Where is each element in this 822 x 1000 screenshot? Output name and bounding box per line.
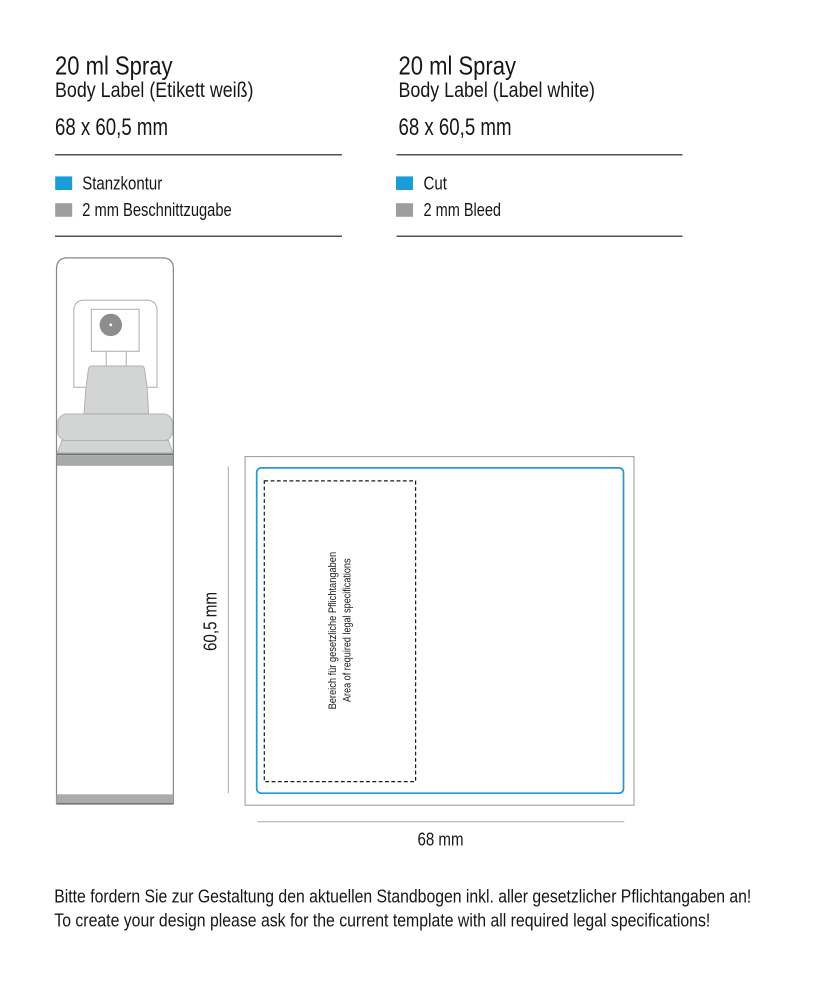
svg-text:2 mm Bleed: 2 mm Bleed: [424, 199, 502, 220]
svg-text:Stanzkontur: Stanzkontur: [82, 172, 162, 193]
svg-text:68 x 60,5 mm: 68 x 60,5 mm: [399, 114, 512, 141]
svg-text:2 mm Beschnittzugabe: 2 mm Beschnittzugabe: [82, 199, 232, 220]
svg-text:To create your design please a: To create your design please ask for the…: [54, 910, 710, 931]
svg-text:60,5 mm: 60,5 mm: [199, 592, 220, 651]
svg-text:Cut: Cut: [424, 172, 448, 193]
svg-text:68 mm: 68 mm: [418, 828, 464, 849]
svg-text:Bitte fordern Sie zur Gestaltu: Bitte fordern Sie zur Gestaltung den akt…: [54, 886, 751, 907]
svg-text:Body Label (Etikett weiß): Body Label (Etikett weiß): [55, 78, 254, 102]
svg-text:20 ml Spray: 20 ml Spray: [55, 50, 173, 80]
svg-text:Body Label (Label white): Body Label (Label white): [399, 78, 596, 102]
svg-text:68 x 60,5 mm: 68 x 60,5 mm: [55, 114, 168, 141]
svg-text:20 ml Spray: 20 ml Spray: [399, 50, 517, 80]
svg-text:Bereich für gesetzliche Pflich: Bereich für gesetzliche Pflichtangaben: [327, 552, 339, 710]
svg-text:Area of required legal specifi: Area of required legal specifications: [342, 558, 354, 702]
